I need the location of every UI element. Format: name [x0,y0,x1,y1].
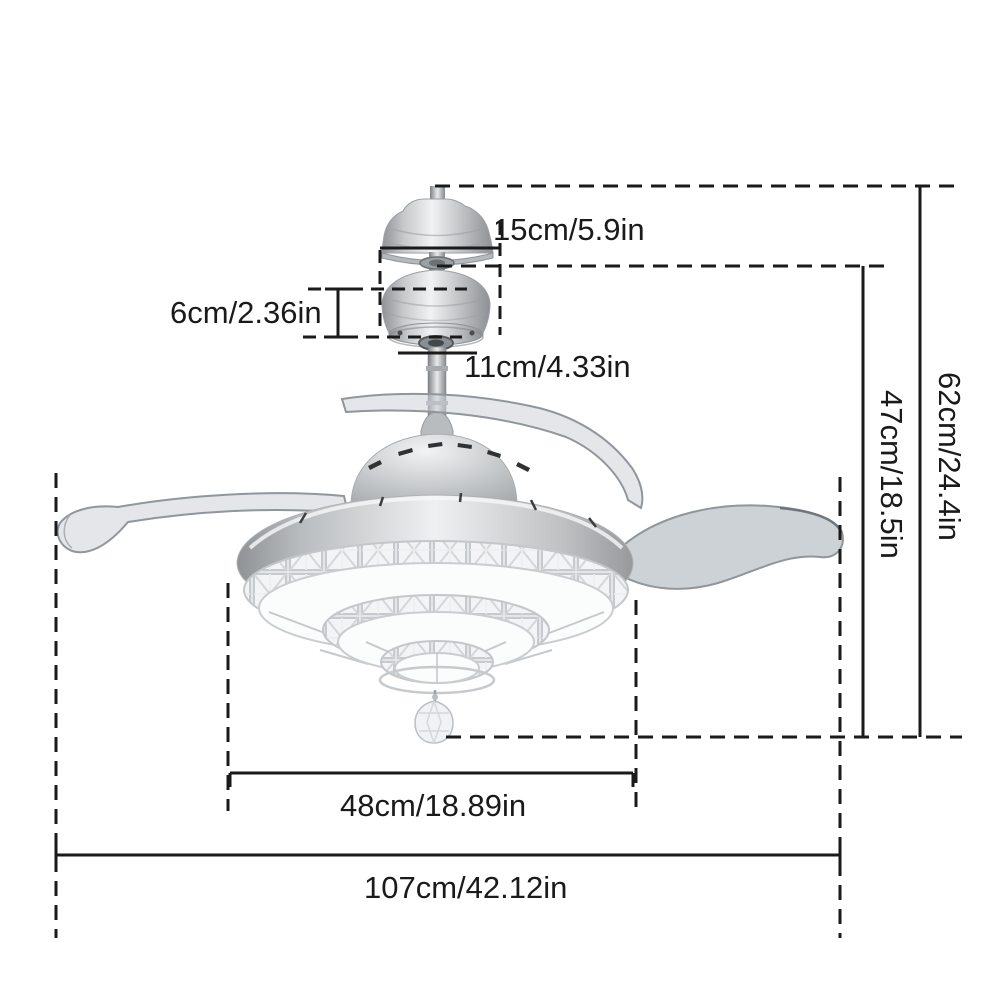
ceiling-fan-diagram-art [0,0,1000,1000]
dim-label-fan-body-height: 47cm/18.5in [874,390,908,559]
crystal-light-tiers [244,541,628,693]
dim-label-overall-height: 62cm/24.4in [932,372,966,541]
crystal-ball-pendant [415,690,453,743]
dim-label-mount-width: 11cm/4.33in [464,350,631,384]
dim-mount-height-line [325,289,352,337]
product-dimension-diagram: 15cm/5.9in 6cm/2.36in 11cm/4.33in 62cm/2… [0,0,1000,1000]
dim-label-blade-span: 107cm/42.12in [364,871,567,905]
dim-blade-span-line [56,847,840,863]
dim-label-body-diameter: 48cm/18.89in [340,789,526,823]
dim-label-canopy-width: 15cm/5.9in [493,213,645,247]
canopy-bell [382,199,493,270]
fan-illustration [58,186,843,743]
ceiling-rod-stub [430,186,445,200]
dim-body-diameter-line [230,773,633,787]
blade-right [608,505,843,588]
dim-label-mount-height: 6cm/2.36in [170,296,322,330]
